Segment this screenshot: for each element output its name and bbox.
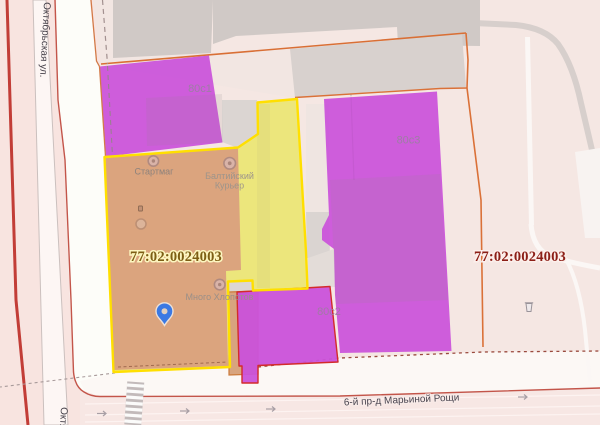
- svg-text:Балтийский: Балтийский: [205, 171, 254, 181]
- svg-text:Стартмаг: Стартмаг: [135, 167, 175, 177]
- svg-text:80с2: 80с2: [317, 306, 341, 318]
- svg-text:Курьер: Курьер: [215, 180, 244, 190]
- svg-text:Много Хлопотов: Много Хлопотов: [186, 292, 254, 302]
- svg-text:77:02:0024003: 77:02:0024003: [130, 249, 222, 265]
- svg-text:77:02:0024003: 77:02:0024003: [474, 249, 566, 265]
- svg-text:80с3: 80с3: [397, 135, 421, 147]
- svg-text:80с1: 80с1: [188, 83, 212, 95]
